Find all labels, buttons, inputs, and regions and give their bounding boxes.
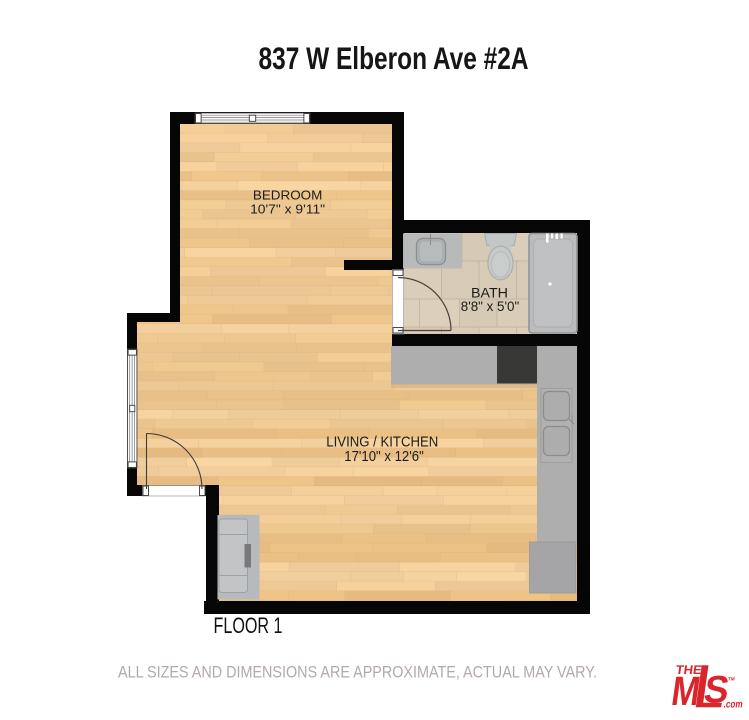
svg-text:837 W Elberon Ave #2A: 837 W Elberon Ave #2A	[259, 40, 529, 76]
svg-text:ALL SIZES AND DIMENSIONS ARE A: ALL SIZES AND DIMENSIONS ARE APPROXIMATE…	[118, 662, 597, 681]
svg-text:LIVING / KITCHEN: LIVING / KITCHEN	[326, 433, 438, 450]
svg-text:17'10" x 12'6": 17'10" x 12'6"	[344, 449, 424, 465]
svg-text:8'8" x 5'0": 8'8" x 5'0"	[461, 299, 520, 314]
svg-text:FLOOR 1: FLOOR 1	[214, 613, 283, 638]
svg-text:10'7" x 9'11": 10'7" x 9'11"	[250, 202, 325, 217]
svg-text:TM: TM	[727, 676, 735, 682]
svg-text:BEDROOM: BEDROOM	[253, 188, 323, 203]
svg-text:.com: .com	[723, 699, 744, 711]
